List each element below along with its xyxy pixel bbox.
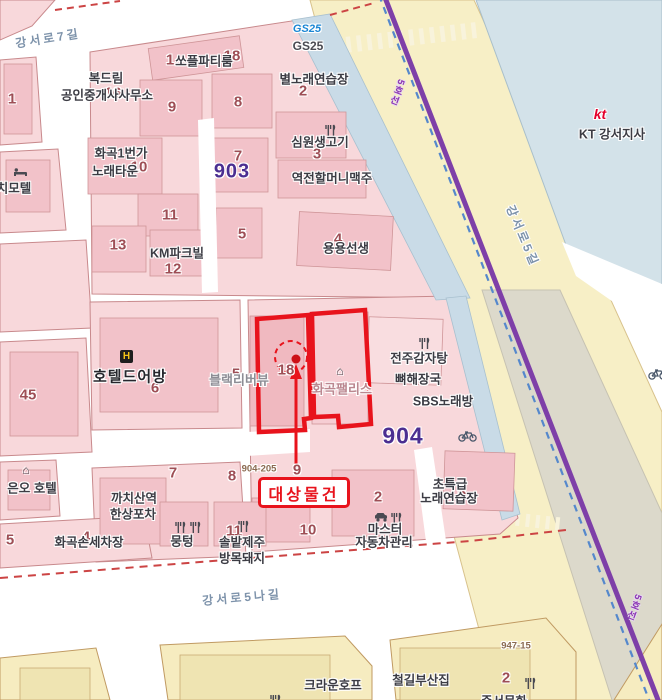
map-base-geometry bbox=[0, 0, 662, 700]
target-property-label-text: 대상물건 bbox=[269, 481, 340, 505]
target-property-label: 대상물건 bbox=[258, 477, 350, 508]
map-canvas[interactable]: H 대상물건 강서로7길강서로5나길강서로5길5호선5호선90390411611… bbox=[0, 0, 662, 700]
